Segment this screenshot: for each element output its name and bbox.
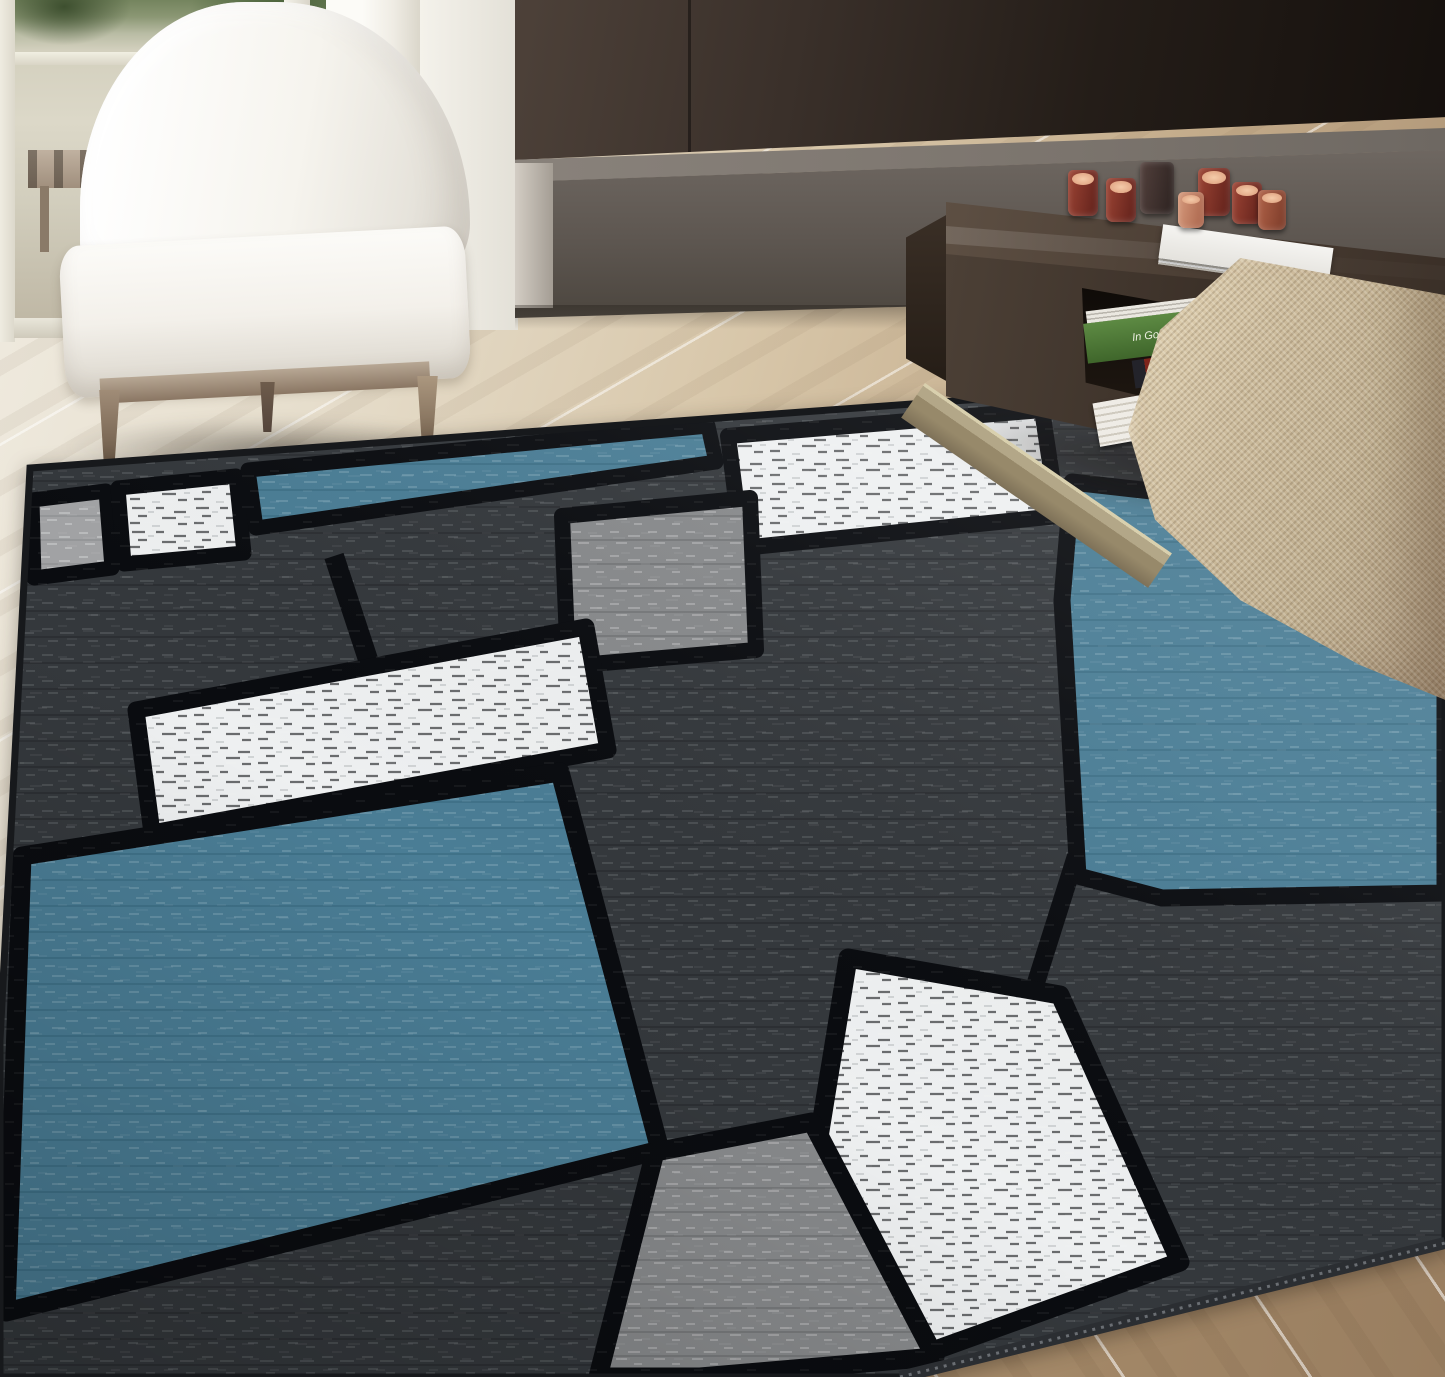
tealight-candle (1140, 162, 1174, 214)
tealight-candle (1178, 192, 1204, 228)
candle-wax (1182, 195, 1201, 204)
candle-wax (1072, 173, 1094, 185)
candle-wax (1262, 193, 1282, 203)
candle-wax (1236, 185, 1258, 196)
living-room-scene: In Godsnaam NEW YORK (0, 0, 1445, 1377)
candle-wax (1202, 171, 1225, 183)
tealight-candle (1068, 170, 1098, 216)
tealight-candle (1258, 190, 1286, 230)
tealight-candle (1106, 178, 1136, 222)
coffee-table-end (906, 214, 948, 382)
candle-wax (1110, 181, 1132, 192)
